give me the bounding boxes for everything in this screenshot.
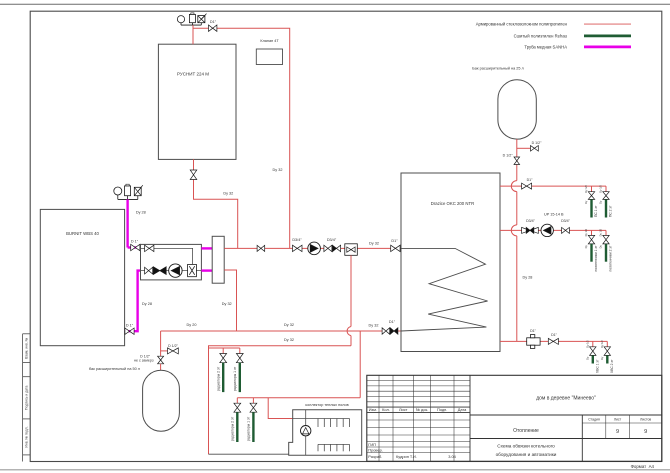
svg-text:Кол.: Кол.	[382, 407, 390, 412]
svg-text:Dy 28: Dy 28	[523, 276, 533, 280]
svg-text:D3/4": D3/4"	[327, 238, 337, 242]
svg-text:Клапан 4Т: Клапан 4Т	[260, 39, 279, 43]
svg-text:Подп.: Подп.	[437, 407, 447, 412]
svg-text:ГИП: ГИП	[368, 442, 376, 447]
svg-text:D1": D1"	[389, 320, 396, 324]
svg-text:UP 15-14 В: UP 15-14 В	[544, 212, 564, 216]
svg-text:Dy 32: Dy 32	[369, 323, 379, 327]
svg-text:D1": D1"	[530, 329, 537, 333]
svg-text:Dy 20: Dy 20	[187, 323, 197, 327]
svg-text:Формат А4: Формат А4	[631, 464, 655, 469]
svg-text:ХВС 1 эт: ХВС 1 эт	[595, 359, 599, 373]
svg-text:D1": D1"	[527, 178, 534, 182]
svg-text:радиаторы 2 эт: радиаторы 2 эт	[230, 416, 234, 441]
svg-text:оборудования и автоматики: оборудования и автоматики	[496, 452, 557, 457]
svg-text:D 1/2": D 1/2"	[140, 354, 151, 358]
svg-text:BURNIT WBS 40: BURNIT WBS 40	[66, 231, 99, 236]
svg-text:Труба медная SANHA: Труба медная SANHA	[524, 44, 567, 49]
svg-text:Листов: Листов	[640, 418, 651, 422]
svg-text:D1": D1"	[551, 333, 558, 337]
svg-text:ПС 2 эт: ПС 2 эт	[609, 205, 613, 217]
svg-text:радиаторы 2 эт: радиаторы 2 эт	[216, 366, 220, 391]
svg-text:ХВС 2 эт: ХВС 2 эт	[610, 359, 614, 373]
svg-text:D 1/2": D 1/2"	[503, 154, 514, 158]
svg-text:РУСНИТ 224 М: РУСНИТ 224 М	[177, 71, 209, 76]
svg-text:радиаторы 1 эт: радиаторы 1 эт	[233, 366, 237, 391]
svg-text:полотенчики 1 эт: полотенчики 1 эт	[594, 245, 598, 272]
svg-text:Бак расширительный на 25 л: Бак расширительный на 25 л	[472, 66, 523, 70]
svg-text:D3/4": D3/4"	[561, 219, 571, 223]
svg-text:9: 9	[616, 429, 619, 435]
svg-text:D1": D1"	[391, 239, 398, 243]
svg-text:№ док.: № док.	[416, 407, 428, 412]
svg-text:не с замерз: не с замерз	[134, 359, 154, 363]
svg-text:D 1/2": D 1/2"	[532, 141, 543, 145]
svg-text:D 1": D 1"	[126, 324, 134, 328]
svg-text:D1": D1"	[210, 20, 217, 24]
svg-text:Dy 32: Dy 32	[273, 168, 283, 172]
svg-text:Dy 28: Dy 28	[136, 210, 146, 214]
svg-text:9: 9	[644, 429, 647, 435]
svg-text:Dy 28: Dy 28	[142, 302, 152, 306]
svg-text:Drazice OKC 200 NTR: Drazice OKC 200 NTR	[431, 201, 474, 206]
svg-text:Кудрин Т.И.: Кудрин Т.И.	[396, 454, 417, 459]
svg-text:Дата: Дата	[458, 407, 467, 412]
svg-text:D 1": D 1"	[131, 240, 139, 244]
svg-text:D3/4": D3/4"	[526, 219, 536, 223]
svg-text:коллектор теплых полов: коллектор теплых полов	[305, 403, 348, 407]
svg-text:Армированный стекловолокном по: Армированный стекловолокном полипропилен	[476, 22, 568, 27]
svg-text:Отопление: Отопление	[513, 428, 539, 434]
svg-text:Провер.: Провер.	[368, 448, 383, 453]
svg-text:Dy 32: Dy 32	[222, 302, 232, 306]
svg-text:ПС 1 эт: ПС 1 эт	[594, 205, 598, 217]
svg-text:Dy 32: Dy 32	[284, 323, 294, 327]
svg-text:Лист: Лист	[399, 407, 408, 412]
svg-text:D3/4": D3/4"	[292, 238, 302, 242]
svg-text:Dy 32: Dy 32	[369, 242, 379, 246]
svg-text:3.04: 3.04	[448, 454, 456, 459]
svg-text:Dy 32: Dy 32	[223, 192, 233, 196]
svg-text:Инв. № подл.: Инв. № подл.	[24, 426, 28, 447]
svg-text:дом в деревне "Минеево": дом в деревне "Минеево"	[536, 396, 596, 402]
svg-text:Лист: Лист	[614, 418, 622, 422]
svg-text:Подпись и дата: Подпись и дата	[24, 385, 28, 410]
svg-text:Взам. инв. №: Взам. инв. №	[24, 337, 28, 358]
svg-text:Схема обвязки котельного: Схема обвязки котельного	[497, 444, 555, 449]
svg-text:Сшитый полиэтилен Rehau: Сшитый полиэтилен Rehau	[514, 33, 568, 38]
svg-text:бак расширительный на 50 л: бак расширительный на 50 л	[89, 367, 140, 371]
svg-text:Dy 32: Dy 32	[284, 338, 294, 342]
svg-text:Изм.: Изм.	[369, 407, 377, 412]
svg-text:Разраб.: Разраб.	[368, 454, 382, 459]
svg-text:D 1/2": D 1/2"	[168, 344, 179, 348]
svg-text:Стадия: Стадия	[588, 418, 600, 422]
svg-text:радиаторы 1 эт: радиаторы 1 эт	[247, 416, 251, 441]
svg-text:полотенчики 2 эт: полотенчики 2 эт	[609, 245, 613, 272]
